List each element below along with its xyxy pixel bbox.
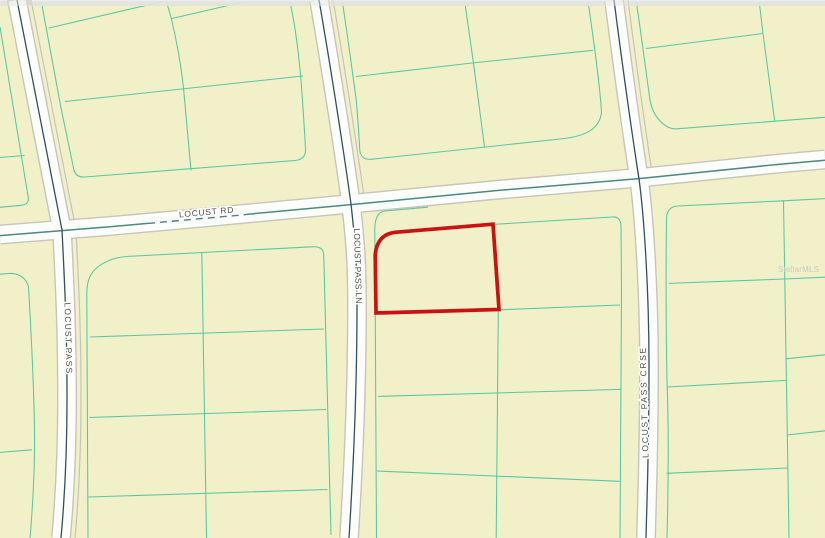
svg-text:LOCUST PASS LN: LOCUST PASS LN — [352, 228, 364, 304]
svg-text:LOCUST PASS: LOCUST PASS — [63, 302, 75, 374]
svg-text:StellarMLS: StellarMLS — [778, 265, 819, 274]
